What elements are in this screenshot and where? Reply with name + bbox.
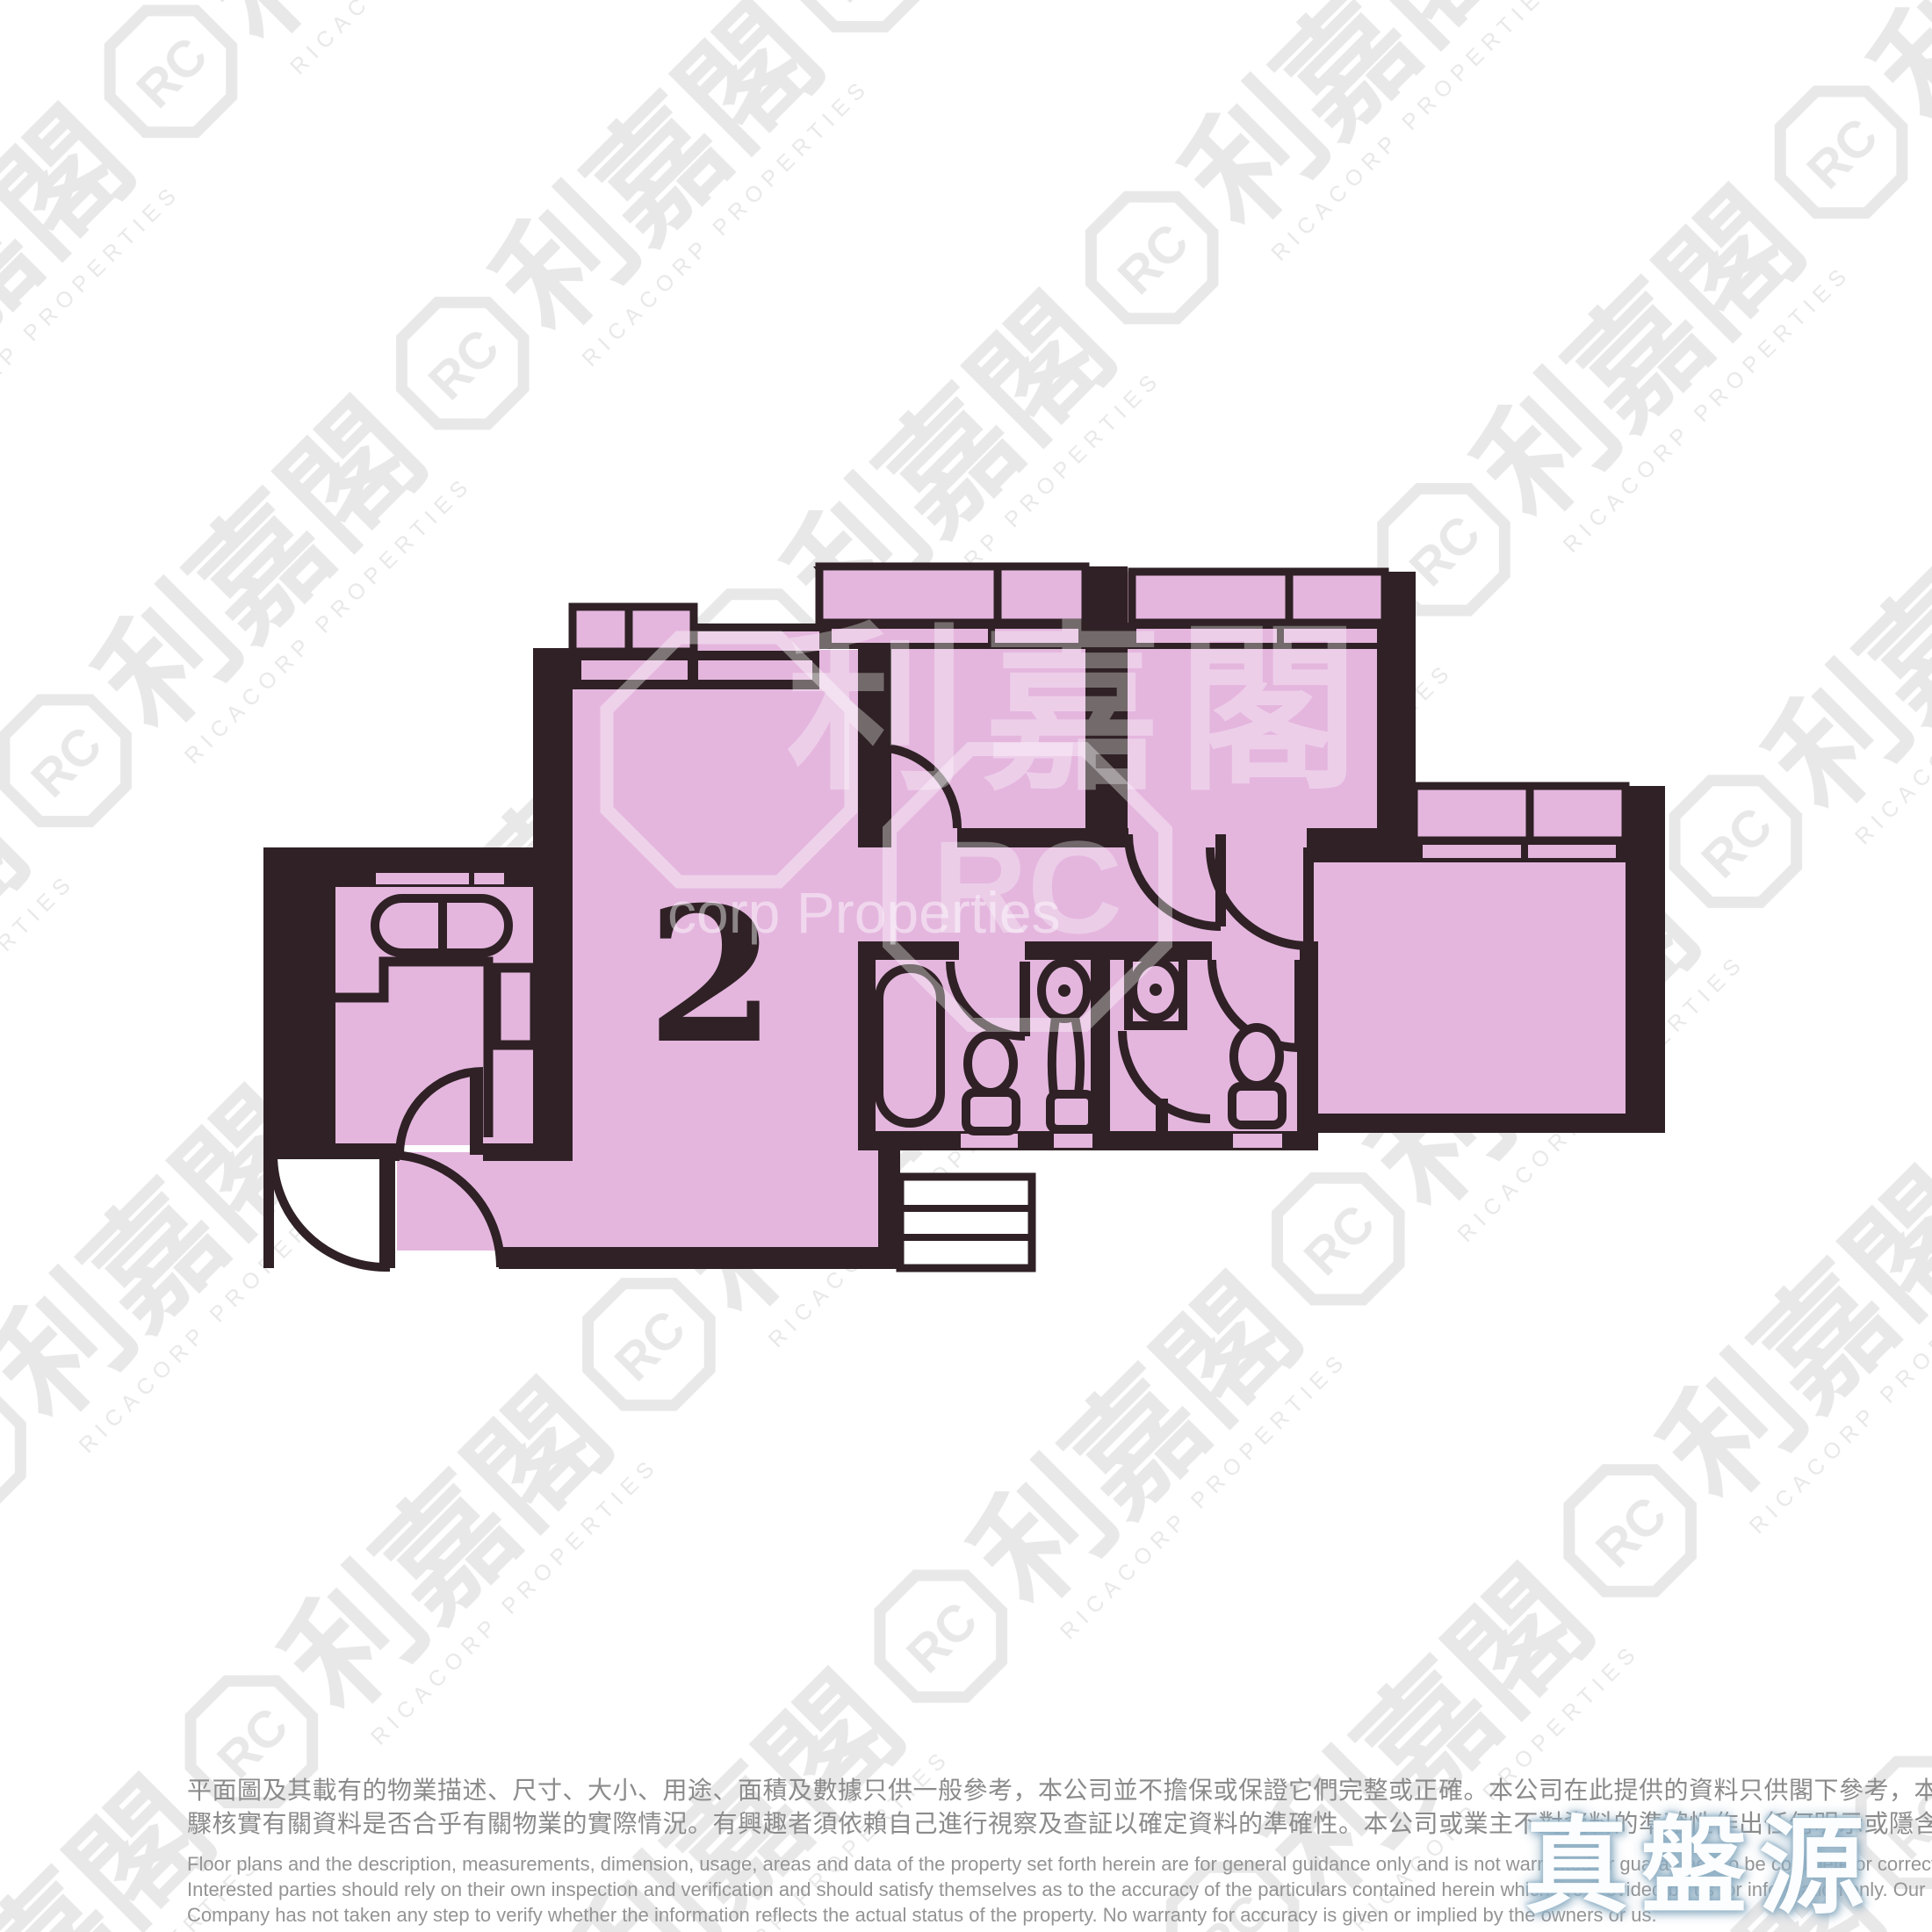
wall-stub [1156,1099,1168,1131]
wall [499,1247,900,1269]
room-master-bedroom [1318,858,1626,1117]
wall [533,648,573,1161]
wall [483,1143,533,1161]
toilet-icon [1234,1027,1280,1085]
door-leaf [1215,834,1226,926]
toilet-icon [968,1034,1013,1092]
disclaimer-line-zh-2: 驟核實有關資料是否合乎有關物業的實際情況。有興趣者須依賴自己進行視察及查証以確定… [187,1807,1557,1841]
door-leaf [1303,847,1314,946]
window-slot [1528,845,1616,858]
window-slot [1233,1134,1282,1148]
disclaimer-line-zh-1: 平面圖及其載有的物業描述、尺寸、大小、用途、面積及數據只供一般參考，本公司並不擔… [187,1774,1557,1807]
basin-base [1050,1094,1092,1129]
toilet-base [1232,1086,1282,1125]
wall [858,828,876,847]
floorplan-page: RC 利嘉閣 RICACORP PROPERTIES [0,0,1932,1932]
floorplan-canvas: RC 利嘉閣 RICACORP PROPERTIES [0,0,1932,1932]
bay-window [1414,786,1626,840]
window-slot [961,1134,1018,1148]
watermark-brand-zh-large: 利嘉閣 [787,607,1374,816]
disclaimer-line-en-3: Company has not taken any step to verify… [187,1902,1557,1928]
basin-drain-dot [1058,984,1071,997]
toilet-base [966,1092,1016,1131]
disclaimer-line-en-2: Interested parties should rely on their … [187,1877,1557,1902]
window-slot [1423,845,1521,858]
wall [1626,786,1665,1133]
wall [1297,1114,1665,1133]
watermark-center-fragment: corp Properties [667,880,1061,945]
verified-listing-logo: 真盤源 [1524,1781,1877,1932]
entrance-hall [397,1152,573,1251]
wall [858,960,876,1150]
door-leaf [379,1150,395,1268]
wall [1307,828,1416,862]
door-leaf [470,1071,483,1155]
basin-drain-dot [1150,984,1162,996]
disclaimer: 平面圖及其載有的物業描述、尺寸、大小、用途、面積及數據只供一般參考，本公司並不擔… [187,1774,1557,1928]
window-slot [474,873,504,884]
window-slot [1054,1134,1092,1148]
fridge-icon [496,968,535,1045]
door-leaf [1294,960,1305,1048]
window-slot [376,873,469,884]
ac-platform [900,1177,1032,1268]
disclaimer-line-en-1: Floor plans and the description, measure… [187,1851,1557,1877]
wall [263,847,335,1152]
